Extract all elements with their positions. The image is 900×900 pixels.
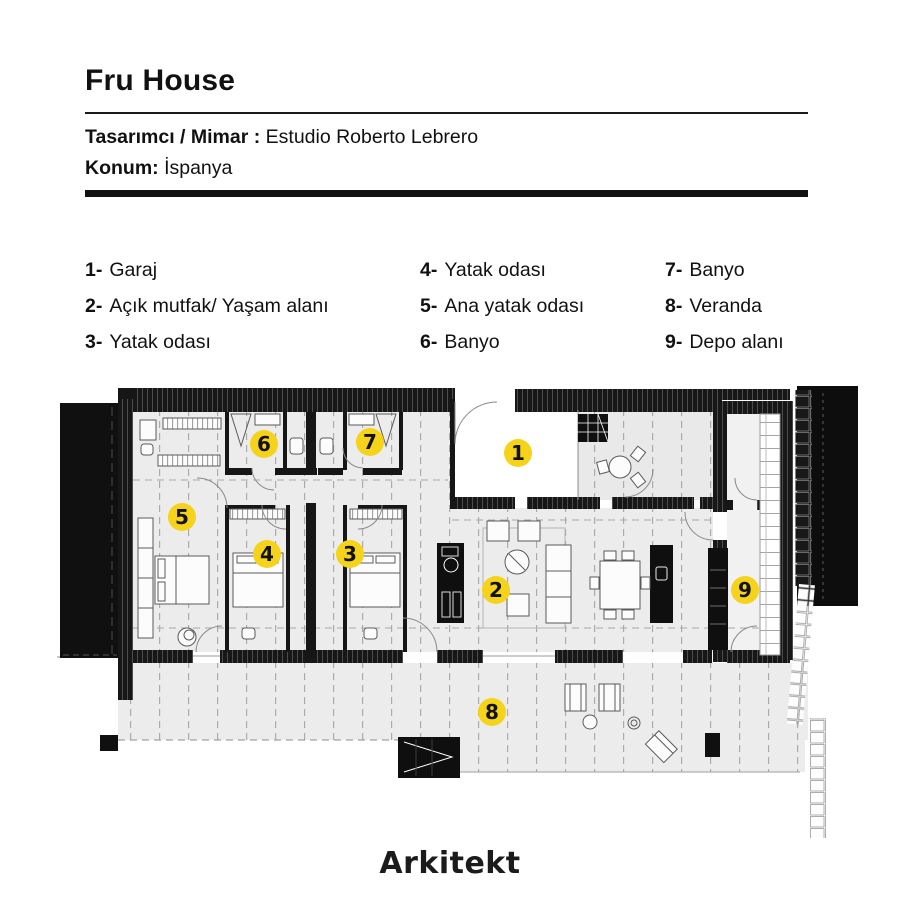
stone-wall-upper bbox=[795, 390, 812, 586]
corner-block-left bbox=[100, 735, 118, 751]
kitchen-island bbox=[650, 545, 673, 623]
corner-block-right bbox=[705, 733, 720, 757]
storage-shelving bbox=[760, 414, 780, 655]
floor-plan-drawing: 123456789 bbox=[0, 0, 900, 900]
garage-grid-box bbox=[578, 414, 608, 442]
corridor-divider-wall bbox=[306, 503, 316, 663]
plan-marker-label-4: 4 bbox=[260, 542, 274, 566]
plan-marker-label-9: 9 bbox=[738, 578, 752, 602]
plan-marker-label-1: 1 bbox=[511, 441, 525, 465]
plan-marker-label-8: 8 bbox=[485, 700, 499, 724]
storage-cabinet bbox=[708, 548, 728, 650]
page: Fru House Tasarımcı / Mimar : Estudio Ro… bbox=[0, 0, 900, 900]
exterior-steps bbox=[398, 737, 460, 778]
arkitekt-logo: Arkitekt bbox=[0, 846, 900, 881]
plan-marker-label-7: 7 bbox=[363, 430, 377, 454]
left-deck-shadow bbox=[60, 403, 118, 658]
plan-marker-label-5: 5 bbox=[175, 505, 189, 529]
plan-marker-label-6: 6 bbox=[257, 432, 271, 456]
plan-marker-label-2: 2 bbox=[489, 578, 503, 602]
fireplace-unit bbox=[437, 543, 464, 623]
plan-marker-label-3: 3 bbox=[343, 542, 357, 566]
